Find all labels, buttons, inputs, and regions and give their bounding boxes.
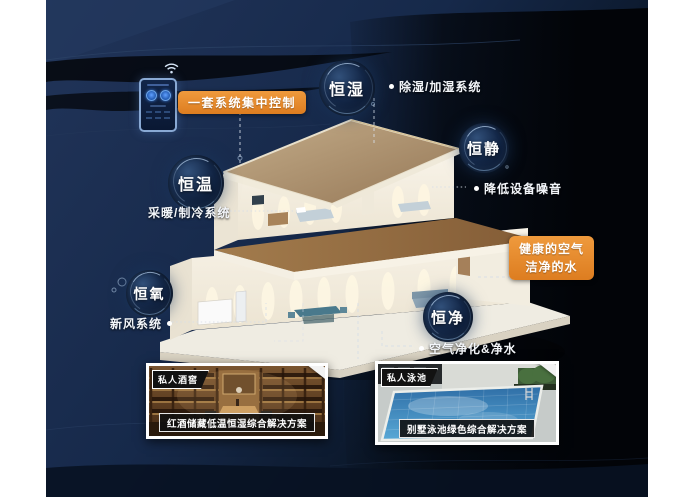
wifi-icon <box>163 60 180 75</box>
phone-stats-row <box>146 111 170 113</box>
bullet-dot <box>419 346 424 351</box>
health-line1: 健康的空气 <box>519 240 584 258</box>
phone-text-bar <box>150 105 166 107</box>
pool-card: 私人泳池 别墅泳池绿色综合解决方案 <box>375 361 559 445</box>
wine-cellar-card: 私人酒窖 红酒储藏低温恒湿综合解决方案 <box>146 363 328 439</box>
note-text: 采暖/制冷系统 <box>148 204 230 221</box>
pool-caption: 别墅泳池绿色综合解决方案 <box>399 419 535 438</box>
feature-bubble-purity: 恒净 <box>423 292 473 342</box>
feature-bubble-oxygen: 恒氧 <box>126 270 173 317</box>
wine-cellar-caption: 红酒储藏低温恒湿综合解决方案 <box>159 413 315 432</box>
infographic-canvas: 一套系统集中控制 健康的空气 洁净的水 恒湿 恒静 恒温 恒氧 恒净 除湿/加湿… <box>0 0 700 497</box>
phone-title-bar <box>147 84 169 86</box>
note-oxygen: 新风系统 <box>110 315 172 332</box>
feature-bubble-humidity: 恒湿 <box>319 60 375 116</box>
stage: 一套系统集中控制 健康的空气 洁净的水 恒湿 恒静 恒温 恒氧 恒净 除湿/加湿… <box>46 0 648 497</box>
wine-cellar-badge: 私人酒窖 <box>152 370 209 389</box>
health-highlight-tag: 健康的空气 洁净的水 <box>509 236 594 280</box>
note-humidity: 除湿/加湿系统 <box>389 78 481 95</box>
bullet-dot <box>167 321 172 326</box>
phone-dials <box>141 90 175 101</box>
note-text: 降低设备噪音 <box>484 180 562 197</box>
dial-icon <box>160 90 171 101</box>
bullet-dot <box>474 186 479 191</box>
pool-badge: 私人泳池 <box>381 368 438 387</box>
note-text: 空气净化&净水 <box>429 340 517 357</box>
health-line2: 洁净的水 <box>519 258 584 276</box>
note-purity: 空气净化&净水 <box>419 340 517 357</box>
bullet-dot <box>389 84 394 89</box>
note-text: 除湿/加湿系统 <box>399 78 481 95</box>
phone-stats-row <box>146 117 170 119</box>
smart-home-app-phone <box>139 78 177 132</box>
note-quiet: 降低设备噪音 <box>474 180 562 197</box>
dial-icon <box>146 90 157 101</box>
note-text: 新风系统 <box>110 315 162 332</box>
note-temperature: 采暖/制冷系统 <box>148 204 230 221</box>
feature-bubble-quiet: 恒静 <box>459 123 509 173</box>
central-control-tag: 一套系统集中控制 <box>178 91 306 114</box>
feature-bubble-temperature: 恒温 <box>168 155 224 211</box>
